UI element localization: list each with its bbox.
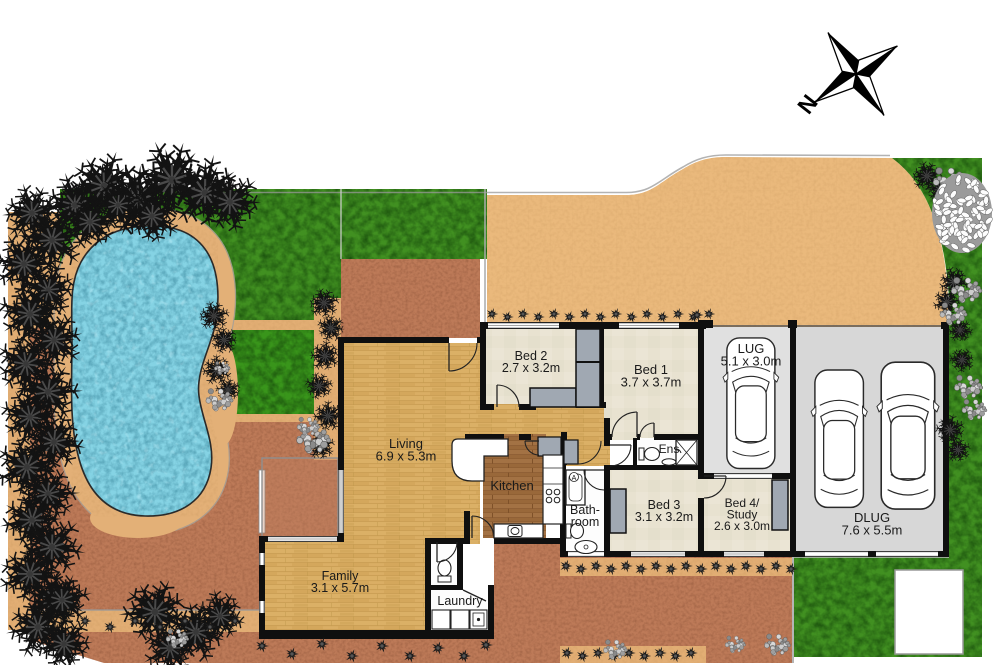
svg-text:Kitchen: Kitchen (490, 478, 533, 493)
svg-text:Laundry: Laundry (437, 594, 483, 608)
svg-text:A: A (572, 475, 577, 482)
svg-text:Ens: Ens (659, 442, 680, 456)
svg-text:Bath-room: Bath-room (570, 503, 600, 529)
